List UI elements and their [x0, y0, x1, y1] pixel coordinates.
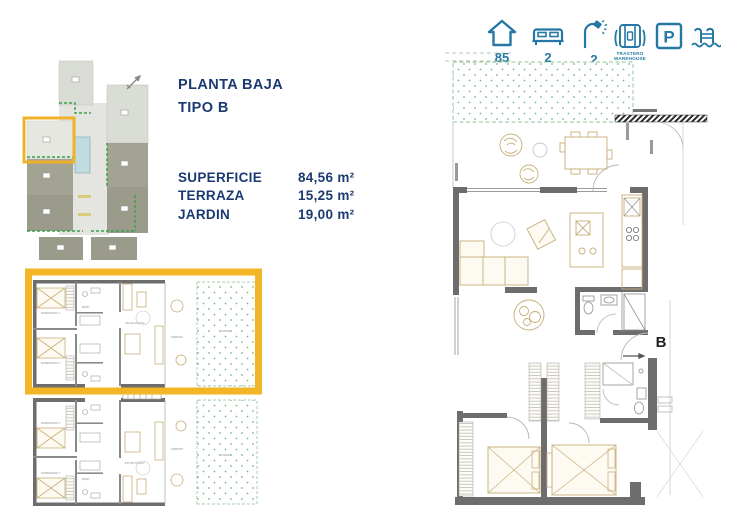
floorplan-sheet: PLANTA BAJA TIPO B SUPERFICIE 84,56 m² T…	[0, 0, 756, 528]
measurement-value: 15,25 m²	[298, 188, 388, 203]
overview-unit-top	[33, 280, 257, 388]
svg-text:P: P	[663, 28, 674, 47]
party-wall	[615, 115, 707, 122]
house-icon	[486, 18, 518, 48]
corridor-elements	[623, 300, 703, 497]
measurements-table: SUPERFICIE 84,56 m² TERRAZA 15,25 m² JAR…	[178, 168, 388, 224]
bedroom-1	[488, 417, 540, 493]
measurement-label: JARDIN	[178, 207, 298, 222]
bathroom-1	[583, 292, 645, 333]
garden-area	[453, 62, 633, 122]
pool	[75, 137, 90, 173]
plan-type: TIPO B	[178, 97, 283, 120]
bedroom-2	[547, 423, 616, 495]
kitchen	[570, 195, 642, 289]
detail-plan: B	[445, 45, 756, 523]
measurement-value: 84,56 m²	[298, 170, 388, 185]
measurement-row: SUPERFICIE 84,56 m²	[178, 168, 388, 187]
terrace-area	[453, 122, 612, 188]
overview-unit-bottom	[33, 398, 257, 506]
measurement-row: JARDIN 19,00 m²	[178, 205, 388, 224]
measurement-row: TERRAZA 15,25 m²	[178, 187, 388, 206]
site-key-plan	[15, 55, 150, 260]
measurement-label: TERRAZA	[178, 188, 298, 203]
bathroom-2	[603, 363, 646, 414]
overview-plan: DORMITORIO 1 DORMITORIO 2 SALON-COCINA T…	[25, 268, 263, 520]
living-furniture	[460, 220, 555, 285]
title-block: PLANTA BAJA TIPO B	[178, 74, 283, 120]
boundary-dashes	[445, 53, 511, 61]
plan-title: PLANTA BAJA	[178, 74, 283, 97]
unit-letter: B	[656, 334, 667, 351]
hall-table	[514, 300, 544, 330]
measurement-value: 19,00 m²	[298, 207, 388, 222]
wall-annotations	[455, 123, 653, 181]
measurement-label: SUPERFICIE	[178, 170, 298, 185]
